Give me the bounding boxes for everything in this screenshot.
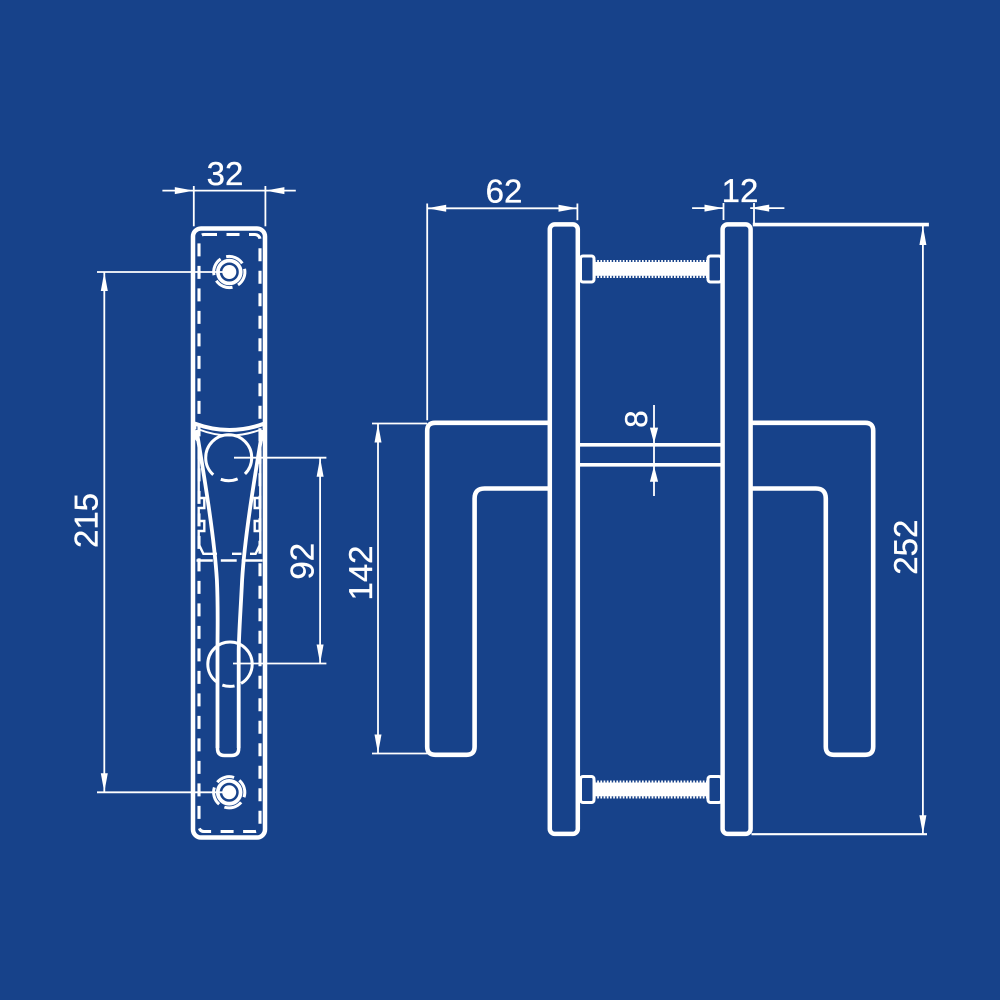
svg-text:8: 8 bbox=[618, 410, 654, 428]
svg-text:92: 92 bbox=[284, 543, 321, 580]
svg-text:215: 215 bbox=[68, 493, 105, 548]
svg-text:12: 12 bbox=[722, 172, 759, 209]
svg-text:62: 62 bbox=[486, 173, 523, 210]
svg-text:32: 32 bbox=[207, 155, 244, 192]
svg-text:252: 252 bbox=[887, 520, 924, 575]
svg-text:142: 142 bbox=[342, 545, 379, 600]
